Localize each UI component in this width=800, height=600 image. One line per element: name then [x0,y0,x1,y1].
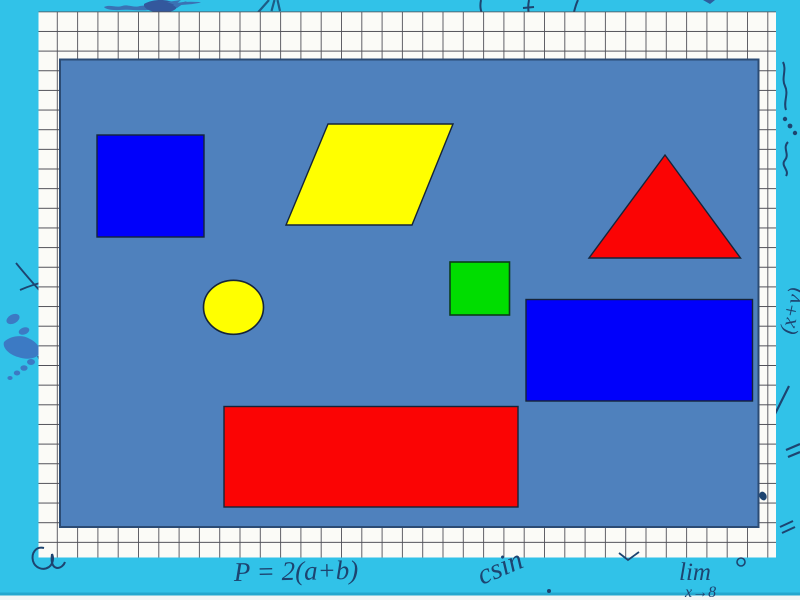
svg-text:x→8: x→8 [684,584,716,600]
svg-text:P = 2(a+b): P = 2(a+b) [233,555,359,587]
svg-text:lim: lim [679,559,711,586]
